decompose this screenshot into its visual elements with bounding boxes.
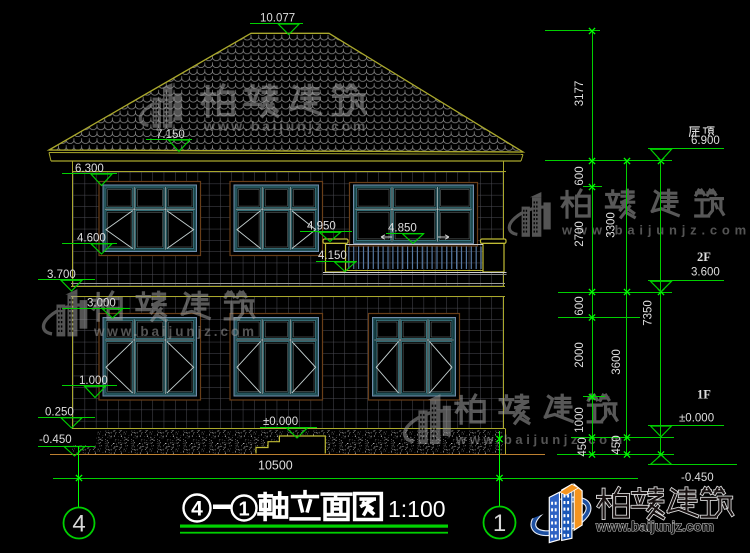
svg-text:3177: 3177 [574,81,586,107]
svg-text:600: 600 [574,166,586,185]
svg-text:1: 1 [493,510,506,537]
svg-text:www.baijunjz.com: www.baijunjz.com [203,118,368,134]
svg-text:www.baijunjz.com: www.baijunjz.com [595,519,714,534]
svg-text:4.950: 4.950 [307,221,336,233]
svg-text:0.250: 0.250 [45,407,74,419]
svg-text:1000: 1000 [574,407,586,433]
svg-text:www.baijunjz.com: www.baijunjz.com [93,324,257,339]
svg-text:www.baijunjz.com: www.baijunjz.com [455,432,626,447]
svg-text:±0.000: ±0.000 [679,413,714,425]
svg-text:10.077: 10.077 [260,13,295,25]
svg-text:450: 450 [611,435,623,454]
svg-text:4.150: 4.150 [318,250,347,262]
svg-text:2000: 2000 [574,342,586,368]
svg-text:1:100: 1:100 [388,496,446,522]
svg-text:3600: 3600 [611,349,623,375]
svg-text:3300: 3300 [606,212,618,238]
svg-text:3.600: 3.600 [691,267,720,279]
svg-text:4: 4 [72,511,85,538]
svg-text:-0.450: -0.450 [681,472,714,484]
svg-text:www.baijunjz.com: www.baijunjz.com [561,223,750,238]
svg-text:4: 4 [191,498,203,521]
svg-text:600: 600 [574,296,586,315]
svg-text:6.900: 6.900 [691,135,720,147]
svg-text:1F: 1F [697,388,711,402]
svg-text:3.000: 3.000 [87,298,116,310]
svg-text:4.600: 4.600 [77,233,106,245]
svg-text:2F: 2F [697,250,711,264]
svg-text:2700: 2700 [574,221,586,247]
svg-text:±0.000: ±0.000 [263,416,298,428]
svg-text:-0.450: -0.450 [39,434,72,446]
svg-text:7350: 7350 [643,300,655,326]
svg-text:450: 450 [577,437,589,456]
svg-text:10500: 10500 [258,459,293,473]
svg-text:4.850: 4.850 [388,223,417,235]
svg-text:1: 1 [238,499,249,521]
